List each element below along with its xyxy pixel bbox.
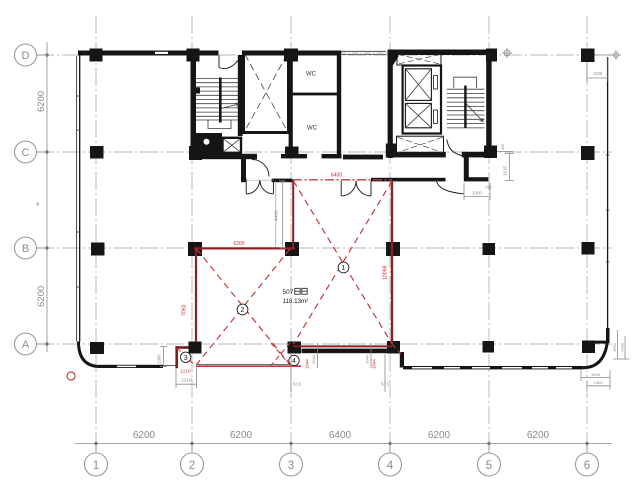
- svg-text:C: C: [22, 147, 30, 159]
- svg-text:6: 6: [584, 460, 590, 472]
- svg-text:63.5: 63.5: [293, 382, 302, 387]
- svg-text:1300: 1300: [620, 342, 625, 352]
- svg-text:63.5: 63.5: [381, 382, 390, 387]
- svg-text:2: 2: [241, 307, 245, 314]
- svg-text:7060: 7060: [182, 304, 188, 316]
- svg-text:″: ″: [35, 202, 47, 206]
- svg-text:10098: 10098: [383, 265, 389, 280]
- svg-text:1210: 1210: [180, 369, 191, 374]
- svg-text:B: B: [22, 243, 29, 255]
- svg-text:6200: 6200: [233, 241, 244, 247]
- svg-text:1210: 1210: [181, 378, 192, 383]
- svg-text:1044: 1044: [311, 354, 316, 364]
- svg-text:4: 4: [292, 358, 296, 365]
- svg-text:1515: 1515: [503, 166, 508, 176]
- svg-text:1044: 1044: [365, 354, 370, 364]
- svg-text:1300: 1300: [157, 354, 162, 364]
- svg-text:1690: 1690: [591, 372, 601, 377]
- svg-text:6200: 6200: [428, 430, 451, 441]
- svg-text:1044: 1044: [305, 359, 310, 369]
- svg-text:1300: 1300: [593, 71, 603, 76]
- svg-text:1690: 1690: [612, 342, 617, 352]
- svg-text:2: 2: [189, 460, 195, 472]
- svg-text:1044: 1044: [372, 359, 377, 369]
- svg-text:300: 300: [501, 144, 505, 150]
- svg-text:3: 3: [288, 460, 294, 472]
- svg-text:WC: WC: [306, 72, 317, 78]
- svg-text:1: 1: [342, 265, 346, 272]
- svg-text:6200: 6200: [36, 286, 47, 307]
- svg-text:WC: WC: [307, 126, 318, 132]
- svg-text:A: A: [22, 339, 30, 351]
- svg-text:1000: 1000: [472, 191, 482, 196]
- svg-text:6200: 6200: [230, 430, 253, 441]
- svg-text:575: 575: [485, 186, 491, 190]
- svg-text:5: 5: [486, 460, 492, 472]
- svg-text:4400: 4400: [274, 210, 280, 221]
- svg-text:D: D: [22, 50, 30, 62]
- svg-text:6200: 6200: [36, 91, 47, 112]
- svg-text:6200: 6200: [133, 430, 156, 441]
- svg-text:3: 3: [184, 355, 188, 362]
- svg-text:507: 507: [283, 289, 294, 296]
- svg-text:6400: 6400: [329, 430, 352, 441]
- svg-text:6400: 6400: [331, 173, 343, 179]
- svg-text:6200: 6200: [527, 430, 550, 441]
- svg-text:4: 4: [387, 460, 394, 472]
- svg-text:118.13m²: 118.13m²: [283, 298, 309, 305]
- svg-text:1300: 1300: [594, 380, 604, 385]
- svg-text:1: 1: [93, 460, 99, 472]
